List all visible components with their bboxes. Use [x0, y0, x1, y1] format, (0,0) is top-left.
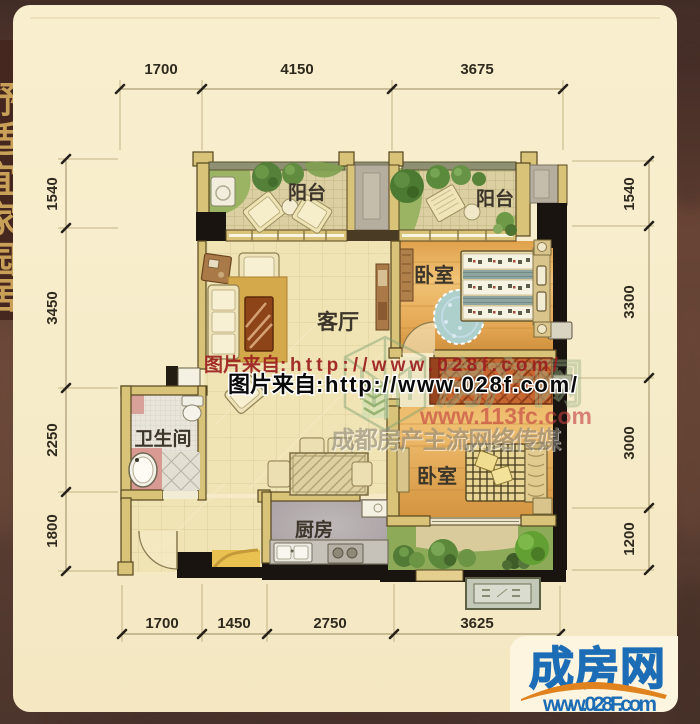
svg-text:1540: 1540	[44, 177, 61, 210]
svg-text:1540: 1540	[621, 177, 638, 210]
svg-text:www.113fc.com: www.113fc.com	[419, 403, 592, 429]
svg-text:2750: 2750	[313, 615, 346, 632]
svg-text:1450: 1450	[217, 615, 250, 632]
svg-text:3300: 3300	[621, 285, 638, 318]
svg-text:阳台: 阳台	[476, 187, 514, 210]
svg-text:www.028F.com: www.028F.com	[542, 693, 657, 716]
svg-text:卧室: 卧室	[414, 263, 454, 287]
svg-text:2250: 2250	[44, 423, 61, 456]
svg-text:3625: 3625	[460, 615, 493, 632]
svg-text:4150: 4150	[280, 61, 313, 78]
svg-text:1200: 1200	[621, 522, 638, 555]
svg-text:1700: 1700	[144, 61, 177, 78]
svg-text:客厅: 客厅	[317, 310, 359, 334]
svg-text:图片来自:: 图片来自:	[228, 372, 323, 397]
svg-text:http://www.028f.com/: http://www.028f.com/	[325, 372, 577, 397]
svg-text:1700: 1700	[145, 615, 178, 632]
svg-text:1800: 1800	[44, 514, 61, 547]
svg-text:卫生间: 卫生间	[134, 427, 191, 450]
svg-text:卧室: 卧室	[417, 464, 457, 488]
svg-text:成都房产主流网络传媒: 成都房产主流网络传媒	[331, 426, 562, 454]
svg-text:3675: 3675	[460, 61, 493, 78]
svg-text:3450: 3450	[44, 291, 61, 324]
svg-text:厨房: 厨房	[295, 518, 333, 541]
svg-text:3000: 3000	[621, 426, 638, 459]
svg-text:阳台: 阳台	[288, 181, 326, 204]
